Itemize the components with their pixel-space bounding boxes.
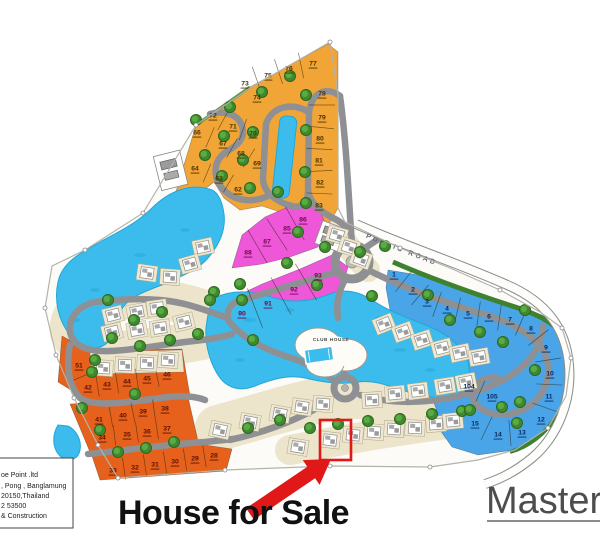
house-icon (115, 356, 136, 373)
lot-area-mark (471, 427, 480, 429)
tree-icon (530, 365, 541, 376)
lot-label: 14 (494, 431, 502, 438)
tree-icon (305, 423, 316, 434)
lot-label: 11 (545, 393, 552, 400)
lot-area-mark (318, 121, 327, 123)
lot-area-mark (546, 377, 555, 379)
lot-label: 8 (529, 325, 533, 332)
tree-icon (87, 367, 98, 378)
lot-area-mark (249, 137, 258, 139)
lot-label: 46 (163, 371, 171, 378)
lot-area-mark (119, 419, 128, 421)
house-icon (136, 264, 158, 283)
lot-label: 83 (315, 202, 323, 209)
house-icon (287, 438, 309, 457)
tree-icon (498, 337, 509, 348)
house-icon (157, 351, 178, 368)
lot-label: 42 (84, 384, 92, 391)
lot-label: 39 (139, 408, 147, 415)
lot-label: 64 (191, 165, 199, 172)
lot-area-mark (237, 157, 246, 159)
lot-area-mark (318, 97, 327, 99)
tree-icon (237, 295, 248, 306)
lot-label: 86 (299, 216, 307, 223)
house-icon (342, 426, 364, 444)
lot-label: 29 (191, 455, 199, 462)
svg-text:oe Point .ltd: oe Point .ltd (1, 472, 38, 479)
lot-area-mark (253, 167, 262, 169)
lot-area-mark (163, 432, 172, 434)
lot-label: 105 (486, 393, 498, 400)
lot-area-mark (545, 400, 554, 402)
lot-label: 15 (471, 420, 479, 427)
tree-icon (301, 198, 312, 209)
club-house-label: CLUB HOUSE (313, 337, 349, 342)
lot-area-mark (506, 323, 515, 325)
tree-icon (77, 403, 88, 414)
lot-area-mark (244, 256, 253, 258)
lot-label: 81 (315, 157, 323, 164)
lot-area-mark (465, 390, 474, 392)
lot-label: 73 (241, 80, 249, 87)
tree-icon (169, 437, 180, 448)
tree-icon (312, 280, 323, 291)
lot-label: 3 (425, 298, 429, 305)
lot-area-mark (488, 400, 497, 402)
house-icon (319, 431, 341, 449)
lot-label: 43 (103, 381, 111, 388)
lot-label: 35 (123, 431, 131, 438)
lot-area-mark (423, 305, 432, 307)
lot-label: 5 (466, 310, 470, 317)
lot-label: 13 (518, 429, 526, 436)
lot-label: 79 (318, 114, 326, 121)
lot-area-mark (123, 385, 132, 387)
address-box: oe Point .ltd , Pong , Banglamung 20150,… (0, 458, 73, 528)
lot-area-mark (299, 223, 308, 225)
tree-icon (465, 405, 476, 416)
lot-label: 66 (193, 129, 201, 136)
lot-label: 31 (151, 461, 159, 468)
tree-icon (245, 183, 256, 194)
svg-text:20150,Thailand: 20150,Thailand (1, 493, 49, 500)
lot-label: 93 (314, 272, 322, 279)
lot-label: 68 (237, 150, 245, 157)
lot-label: 87 (263, 238, 271, 245)
lot-area-mark (171, 465, 180, 467)
lot-area-mark (283, 232, 292, 234)
tree-icon (497, 402, 508, 413)
lot-label: 85 (283, 225, 291, 232)
house-icon (405, 419, 426, 436)
lot-area-mark (542, 351, 551, 353)
lot-area-mark (193, 136, 202, 138)
house-icon (159, 268, 180, 285)
tree-icon (205, 295, 216, 306)
lot-label: 34 (98, 434, 106, 441)
tree-icon (363, 416, 374, 427)
lot-area-mark (143, 382, 152, 384)
tree-icon (273, 187, 284, 198)
lot-area-mark (537, 423, 546, 425)
house-icon (361, 391, 382, 408)
lot-area-mark (95, 423, 104, 425)
tree-icon (141, 443, 152, 454)
master-plan-title: Master (486, 480, 600, 522)
lot-label: 88 (244, 249, 252, 256)
tree-icon (165, 335, 176, 346)
master-plan-page: { "annotations": { "house_for_sale": "Ho… (0, 0, 600, 540)
tree-icon (200, 150, 211, 161)
lot-label: 12 (537, 416, 545, 423)
tree-icon (301, 90, 312, 101)
lot-label: 70 (249, 130, 257, 137)
lot-label: 76 (285, 65, 293, 72)
lot-area-mark (485, 320, 494, 322)
tree-icon (135, 341, 146, 352)
lot-label: 44 (123, 378, 131, 385)
tree-icon (475, 327, 486, 338)
lot-label: 91 (264, 300, 272, 307)
tree-icon (300, 167, 311, 178)
tree-icon (235, 279, 246, 290)
tree-icon (248, 335, 259, 346)
lot-label: 41 (95, 416, 103, 423)
lot-area-mark (315, 209, 324, 211)
lot-label: 32 (131, 464, 139, 471)
tree-icon (107, 333, 118, 344)
tree-icon (193, 329, 204, 340)
tree-icon (103, 295, 114, 306)
lot-area-mark (84, 391, 93, 393)
house-icon (291, 398, 313, 417)
lot-label: 77 (309, 60, 317, 67)
lot-label: 62 (234, 186, 242, 193)
tree-icon (512, 418, 523, 429)
house-icon (434, 377, 456, 396)
lot-area-mark (253, 101, 262, 103)
lot-label: 9 (544, 344, 548, 351)
master-plan-map: PUBLIC ROAD CLUB HOUSE 77767573747879808… (0, 0, 600, 540)
lot-label: 37 (163, 425, 171, 432)
lot-area-mark (234, 193, 243, 195)
lot-label: 1 (392, 271, 396, 278)
house-for-sale-caption: House for Sale (118, 494, 349, 532)
roundabout-south (334, 377, 356, 399)
lot-area-mark (161, 412, 170, 414)
tree-icon (355, 247, 366, 258)
lot-label: 74 (253, 94, 261, 101)
lot-area-mark (316, 186, 325, 188)
lot-area-mark (314, 279, 323, 281)
lot-label: 51 (75, 362, 83, 369)
lot-area-mark (229, 130, 238, 132)
lot-label: 6 (487, 313, 491, 320)
tree-icon (515, 397, 526, 408)
lot-label: 45 (143, 375, 151, 382)
tree-icon (243, 423, 254, 434)
lot-label: 4 (445, 305, 449, 312)
tree-icon (367, 291, 378, 302)
house-icon (468, 347, 490, 366)
lot-area-mark (238, 317, 247, 319)
lot-area-mark (143, 435, 152, 437)
lot-label: 67 (219, 140, 227, 147)
lot-label: 2 (411, 286, 415, 293)
lot-area-mark (219, 147, 228, 149)
lot-area-mark (103, 388, 112, 390)
lot-label: 92 (290, 286, 298, 293)
lot-area-mark (315, 164, 324, 166)
lot-label: 80 (316, 135, 324, 142)
lot-label: 10 (546, 370, 554, 377)
lot-label: 78 (318, 90, 326, 97)
house-icon (312, 395, 333, 413)
lot-area-mark (527, 332, 536, 334)
tree-icon (275, 415, 286, 426)
lot-label: 38 (161, 405, 169, 412)
tree-icon (293, 227, 304, 238)
tree-icon (395, 414, 406, 425)
lot-area-mark (75, 369, 84, 371)
lot-area-mark (163, 378, 172, 380)
tree-icon (157, 307, 168, 318)
lot-area-mark (464, 317, 473, 319)
lot-area-mark (409, 293, 418, 295)
tree-icon (129, 315, 140, 326)
lot-area-mark (494, 438, 503, 440)
tree-icon (445, 315, 456, 326)
lot-area-mark (210, 459, 219, 461)
tree-icon (282, 258, 293, 269)
svg-text:& Construction: & Construction (1, 513, 47, 520)
lot-label: 40 (119, 412, 127, 419)
lot-label: 63 (215, 175, 223, 182)
house-icon (384, 385, 406, 403)
svg-text:2 53500: 2 53500 (1, 503, 26, 510)
lot-label: 7 (508, 316, 512, 323)
lot-area-mark (290, 293, 299, 295)
lot-area-mark (139, 415, 148, 417)
lot-area-mark (209, 119, 218, 121)
lot-area-mark (151, 468, 160, 470)
lot-area-mark (98, 441, 107, 443)
lot-area-mark (191, 172, 200, 174)
svg-text:Master: Master (486, 480, 600, 522)
lot-label: 71 (229, 123, 237, 130)
house-icon (407, 382, 429, 400)
tree-icon (90, 355, 101, 366)
tree-icon (130, 389, 141, 400)
house-icon (137, 354, 158, 371)
lot-label: 69 (253, 160, 261, 167)
tree-icon (113, 447, 124, 458)
lot-label: 36 (143, 428, 151, 435)
lot-label: 90 (238, 310, 246, 317)
tree-icon (301, 125, 312, 136)
lot-area-mark (390, 278, 399, 280)
lot-area-mark (191, 462, 200, 464)
lot-area-mark (131, 471, 140, 473)
tree-icon (225, 102, 236, 113)
tree-icon (427, 409, 438, 420)
lot-area-mark (309, 67, 318, 69)
lot-label: 104 (463, 383, 475, 390)
tree-icon (320, 242, 331, 253)
svg-text:, Pong , Banglamung: , Pong , Banglamung (1, 483, 66, 490)
lot-area-mark (443, 312, 452, 314)
lot-label: 82 (316, 179, 324, 186)
lot-label: 30 (171, 458, 179, 465)
lot-area-mark (123, 438, 132, 440)
lot-area-mark (285, 72, 294, 74)
lot-label: 28 (210, 452, 218, 459)
lot-area-mark (263, 245, 272, 247)
lot-area-mark (215, 182, 224, 184)
lot-area-mark (264, 307, 273, 309)
lot-area-mark (518, 436, 527, 438)
lot-area-mark (316, 142, 325, 144)
